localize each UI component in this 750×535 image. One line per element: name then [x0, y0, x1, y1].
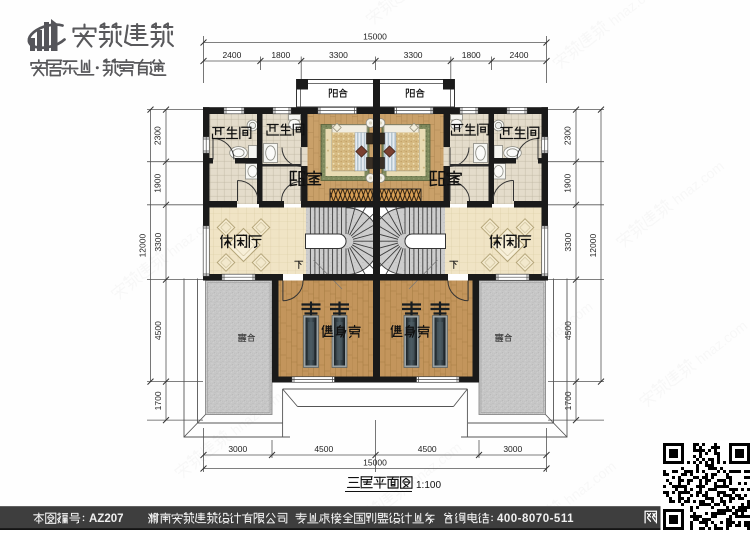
svg-text:3300: 3300 [563, 232, 573, 251]
svg-text:2300: 2300 [153, 126, 163, 145]
svg-text:1900: 1900 [153, 174, 163, 193]
svg-text:400-8070-511: 400-8070-511 [497, 513, 574, 525]
svg-text:2400: 2400 [510, 50, 529, 60]
svg-text:4500: 4500 [563, 321, 573, 340]
svg-text:1800: 1800 [462, 50, 481, 60]
svg-text:4500: 4500 [418, 444, 437, 454]
svg-text:AZ207: AZ207 [89, 513, 124, 525]
svg-text:4500: 4500 [153, 321, 163, 340]
svg-text:4500: 4500 [314, 444, 333, 454]
svg-text:1700: 1700 [563, 391, 573, 410]
svg-text:3300: 3300 [404, 50, 423, 60]
svg-text:2300: 2300 [563, 126, 573, 145]
svg-text:2400: 2400 [222, 50, 241, 60]
svg-text:15000: 15000 [363, 458, 387, 468]
svg-text:3000: 3000 [503, 444, 522, 454]
svg-text:3000: 3000 [228, 444, 247, 454]
svg-text:3300: 3300 [329, 50, 348, 60]
svg-text:1900: 1900 [563, 174, 573, 193]
svg-text:1800: 1800 [271, 50, 290, 60]
svg-text:15000: 15000 [363, 32, 387, 42]
svg-text:12000: 12000 [588, 234, 598, 258]
svg-text:1700: 1700 [153, 391, 163, 410]
svg-text:12000: 12000 [138, 234, 148, 258]
svg-text:1:100: 1:100 [416, 480, 441, 491]
svg-text:3300: 3300 [153, 232, 163, 251]
